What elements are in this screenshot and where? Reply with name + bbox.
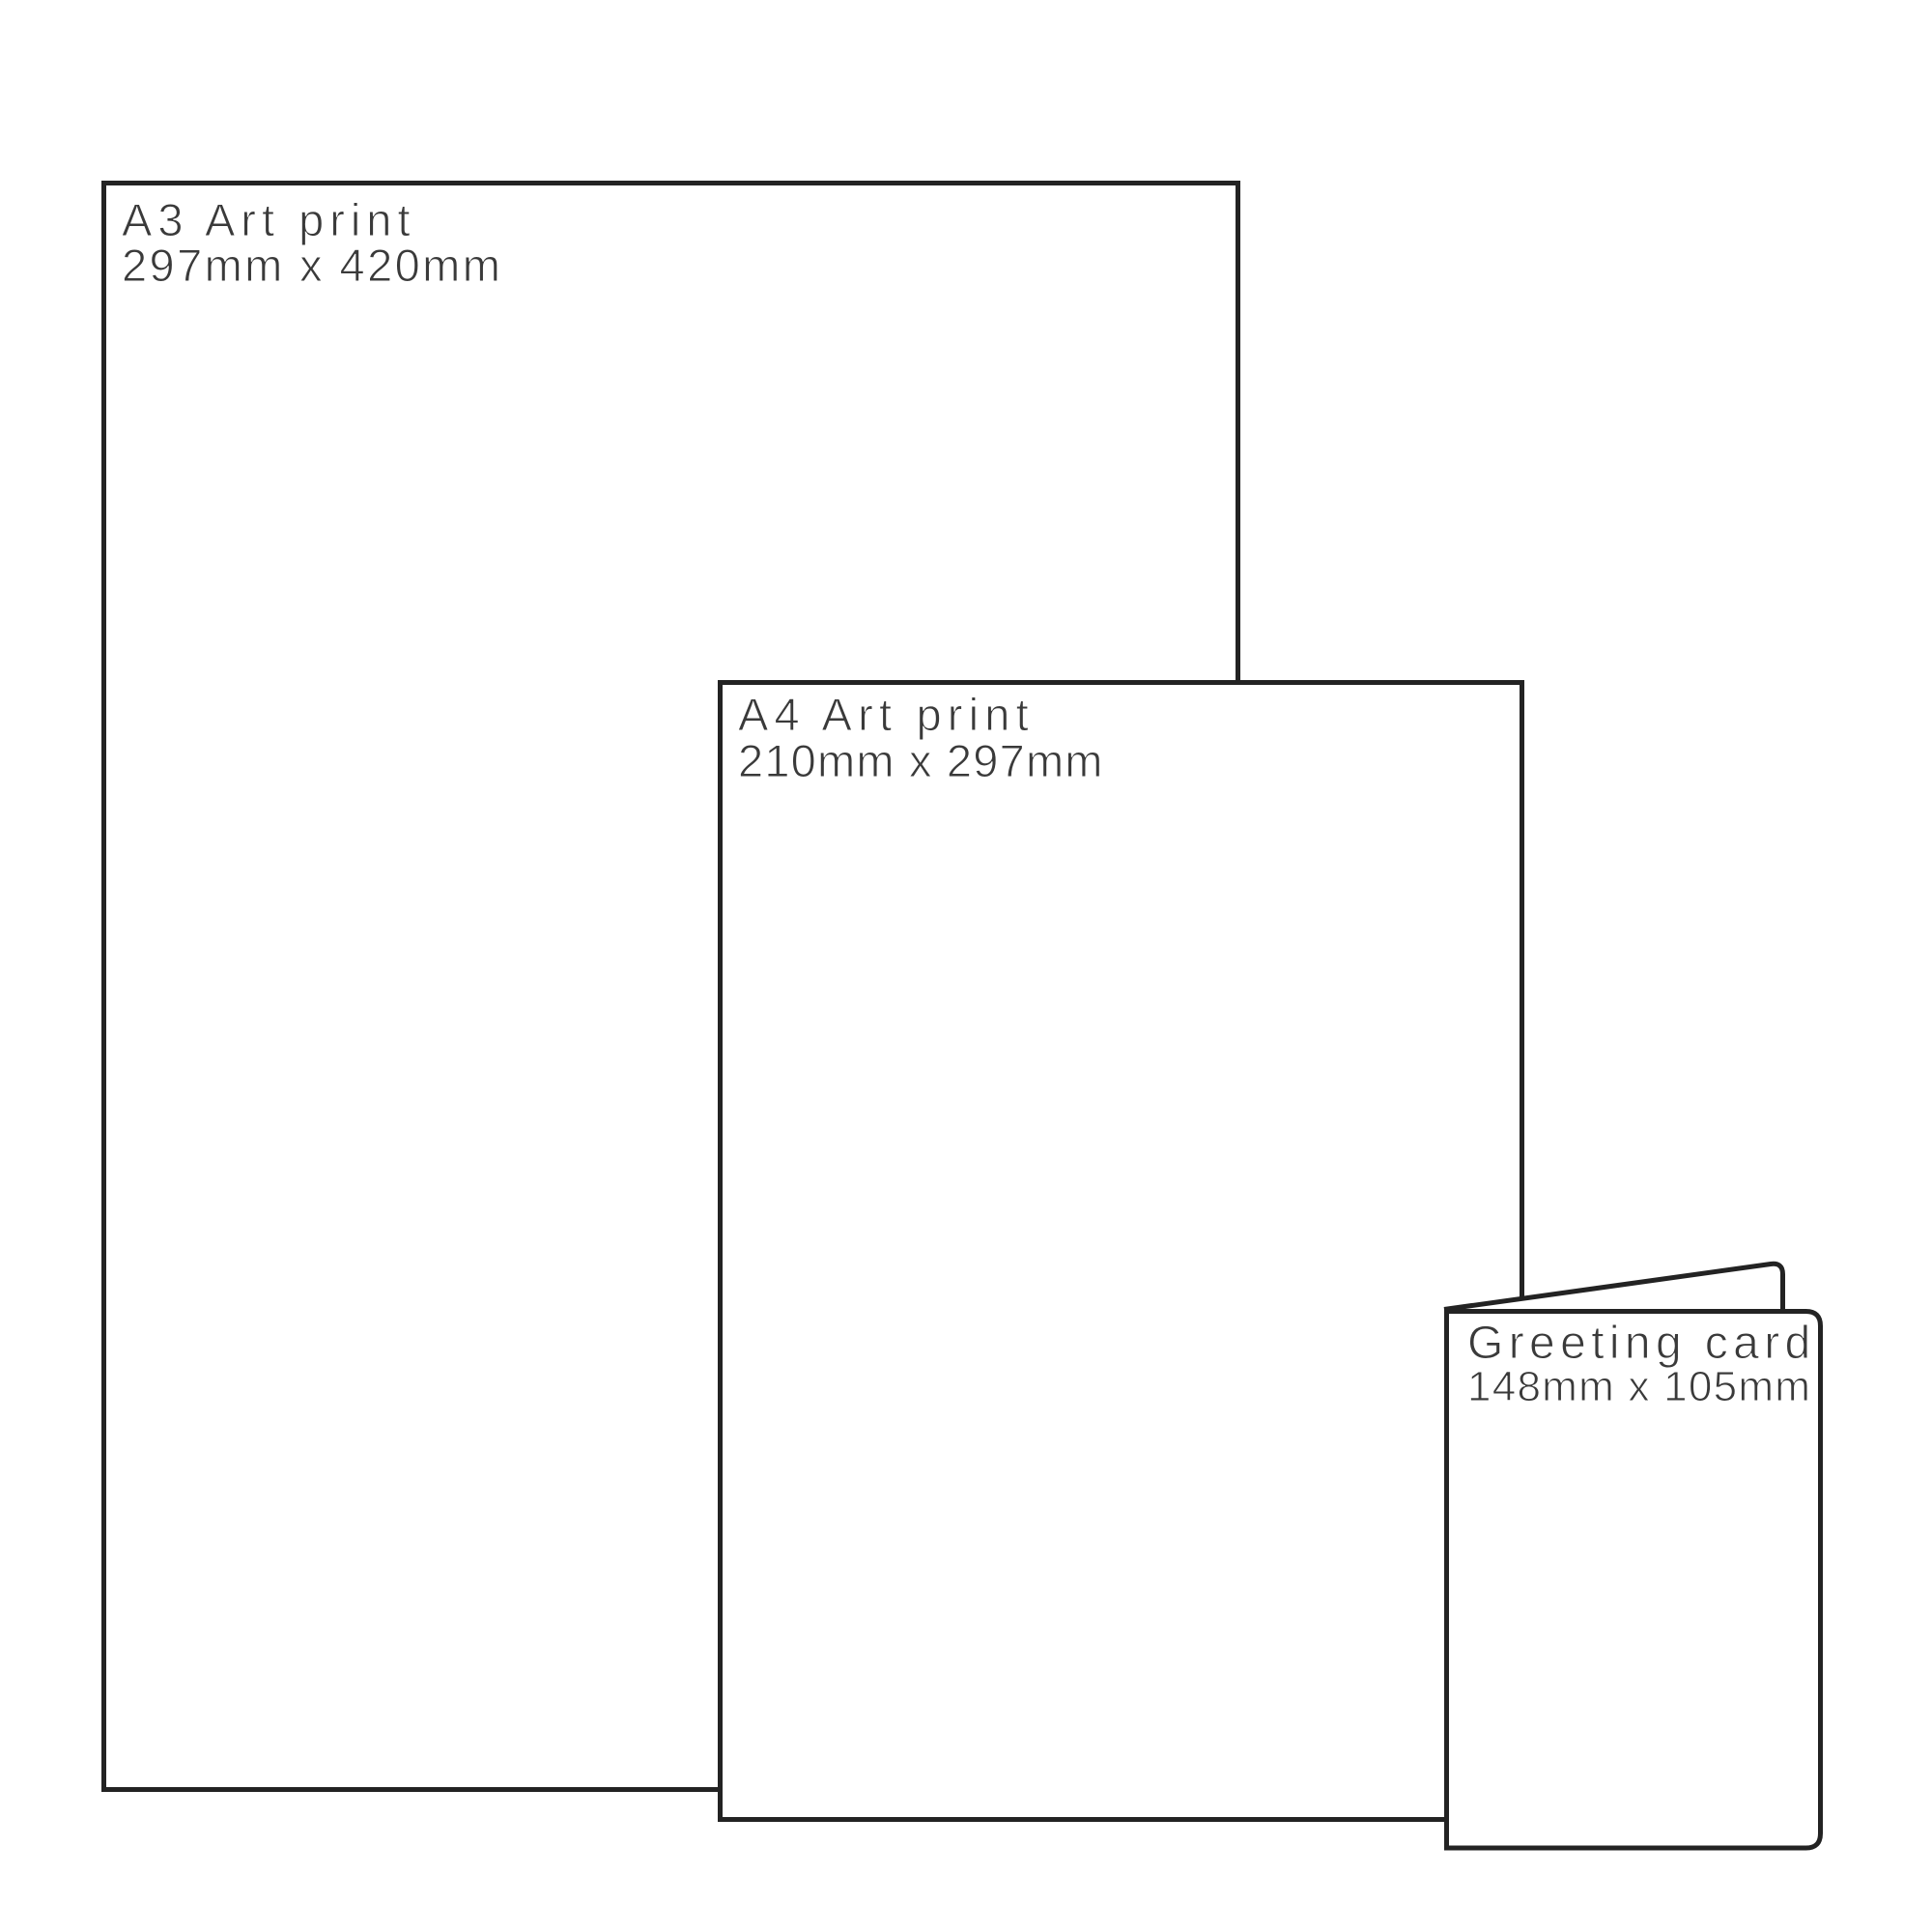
svg-text:A4 Art print: A4 Art print <box>738 689 1035 740</box>
svg-text:148mm x 105mm: 148mm x 105mm <box>1467 1363 1811 1410</box>
svg-text:210mm x 297mm: 210mm x 297mm <box>738 735 1104 786</box>
svg-text:Greeting card: Greeting card <box>1467 1318 1816 1369</box>
svg-text:A3 Art print: A3 Art print <box>122 194 416 245</box>
svg-text:297mm x 420mm: 297mm x 420mm <box>122 240 502 291</box>
